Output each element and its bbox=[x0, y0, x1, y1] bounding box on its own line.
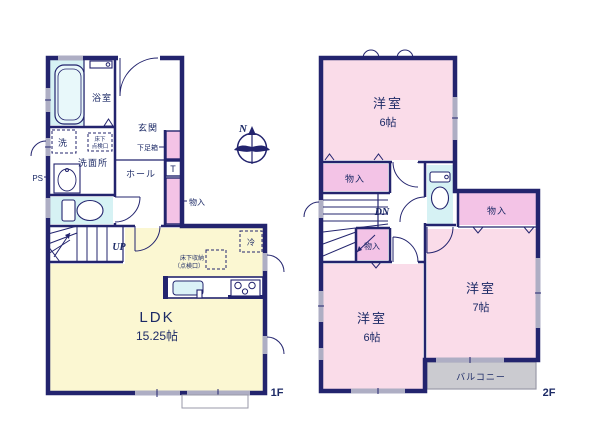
underfloor-storage-line1: 床下収納 bbox=[180, 254, 204, 262]
closet-north-label: 物入 bbox=[345, 173, 365, 184]
balcony-label: バルコニー bbox=[456, 372, 506, 382]
closet-1f-box bbox=[166, 178, 181, 224]
ldk-size-label: 15.25帖 bbox=[136, 328, 178, 343]
compass-north-label: N bbox=[238, 123, 248, 135]
floor-2f: 洋室 6帖 物入 DN 物入 物入 洋室 7帖 洋室 6帖 バルコニー 2F bbox=[304, 50, 556, 399]
floor-label-2f: 2F bbox=[543, 387, 556, 399]
underfloor-storage-line2: （点検口） bbox=[174, 262, 204, 270]
entrance-label: 玄関 bbox=[138, 122, 158, 133]
ldk-label: LDK bbox=[139, 309, 174, 326]
toilet-1f-bowl bbox=[77, 201, 103, 221]
bath-counter bbox=[90, 61, 112, 68]
kitchen-counter-cap bbox=[163, 276, 168, 299]
hall-label: ホール bbox=[126, 169, 156, 179]
stairs-up-label: UP bbox=[112, 242, 126, 253]
floor-1f: 浴室 洗 洗面所 PS 玄関 下足箱 T ホール 物入 UP 床下 点検口 冷 … bbox=[31, 54, 284, 408]
toilet-1f-tank bbox=[62, 200, 75, 221]
stairs-down-label: DN bbox=[374, 207, 390, 218]
washroom-label: 洗面所 bbox=[78, 157, 108, 168]
bedroom-east-label: 洋室 bbox=[466, 281, 496, 296]
refrigerator-label: 冷 bbox=[247, 237, 255, 247]
room-bedroom-south-floor bbox=[323, 264, 423, 391]
bathroom-door-mark bbox=[104, 119, 113, 126]
floor-plan-canvas: 浴室 洗 洗面所 PS 玄関 下足箱 T ホール 物入 UP 床下 点検口 冷 … bbox=[0, 0, 600, 445]
bathroom-label: 浴室 bbox=[92, 92, 112, 103]
closet-east-label: 物入 bbox=[487, 205, 507, 216]
casement-swing-2f bbox=[304, 202, 319, 217]
bedroom-south-door-swing bbox=[393, 237, 418, 262]
bedroom-east-size: 7帖 bbox=[472, 301, 489, 314]
pipe-space-label: PS bbox=[32, 174, 43, 183]
terrace-step bbox=[182, 395, 248, 408]
bedroom-north-size: 6帖 bbox=[379, 116, 396, 129]
washroom-door-swing bbox=[115, 197, 140, 222]
t-marker-label: T bbox=[170, 164, 177, 174]
compass-arrowhead bbox=[248, 126, 256, 135]
stair-treads-1f bbox=[77, 226, 107, 262]
bedroom-north-label: 洋室 bbox=[373, 96, 403, 111]
underfloor-hatch-line2: 点検口 bbox=[92, 142, 109, 150]
stairs-1f bbox=[48, 226, 107, 262]
floor-plan-page: 浴室 洗 洗面所 PS 玄関 下足箱 T ホール 物入 UP 床下 点検口 冷 … bbox=[0, 0, 600, 445]
closet-center-label: 物入 bbox=[364, 241, 380, 251]
bedroom-south-label: 洋室 bbox=[357, 311, 387, 326]
toilet-2f-bowl bbox=[432, 187, 449, 209]
toilet-2f-tank bbox=[430, 172, 450, 182]
toilet-1f-fixture bbox=[62, 200, 103, 221]
entrance-door-swing bbox=[120, 58, 158, 96]
closet-1f-label: 物入 bbox=[189, 197, 205, 207]
underfloor-hatch-line1: 床下 bbox=[94, 135, 106, 143]
shoe-cabinet-label: 下足箱 bbox=[137, 143, 158, 152]
shoe-cabinet-box bbox=[166, 131, 181, 159]
compass: N bbox=[234, 123, 270, 164]
laundry-label: 洗 bbox=[58, 137, 68, 148]
stair-arrowhead-1f bbox=[65, 233, 70, 239]
kitchen-counter bbox=[163, 276, 265, 299]
bathtub-outer bbox=[55, 65, 84, 124]
bedroom-north-door-swing bbox=[393, 162, 418, 187]
floor-label-1f: 1F bbox=[271, 387, 284, 399]
bedroom-south-size: 6帖 bbox=[363, 331, 380, 344]
toilet-2f-door-swing bbox=[400, 197, 425, 222]
kitchen-faucet-icon bbox=[197, 290, 202, 298]
wash-basin bbox=[54, 164, 80, 193]
